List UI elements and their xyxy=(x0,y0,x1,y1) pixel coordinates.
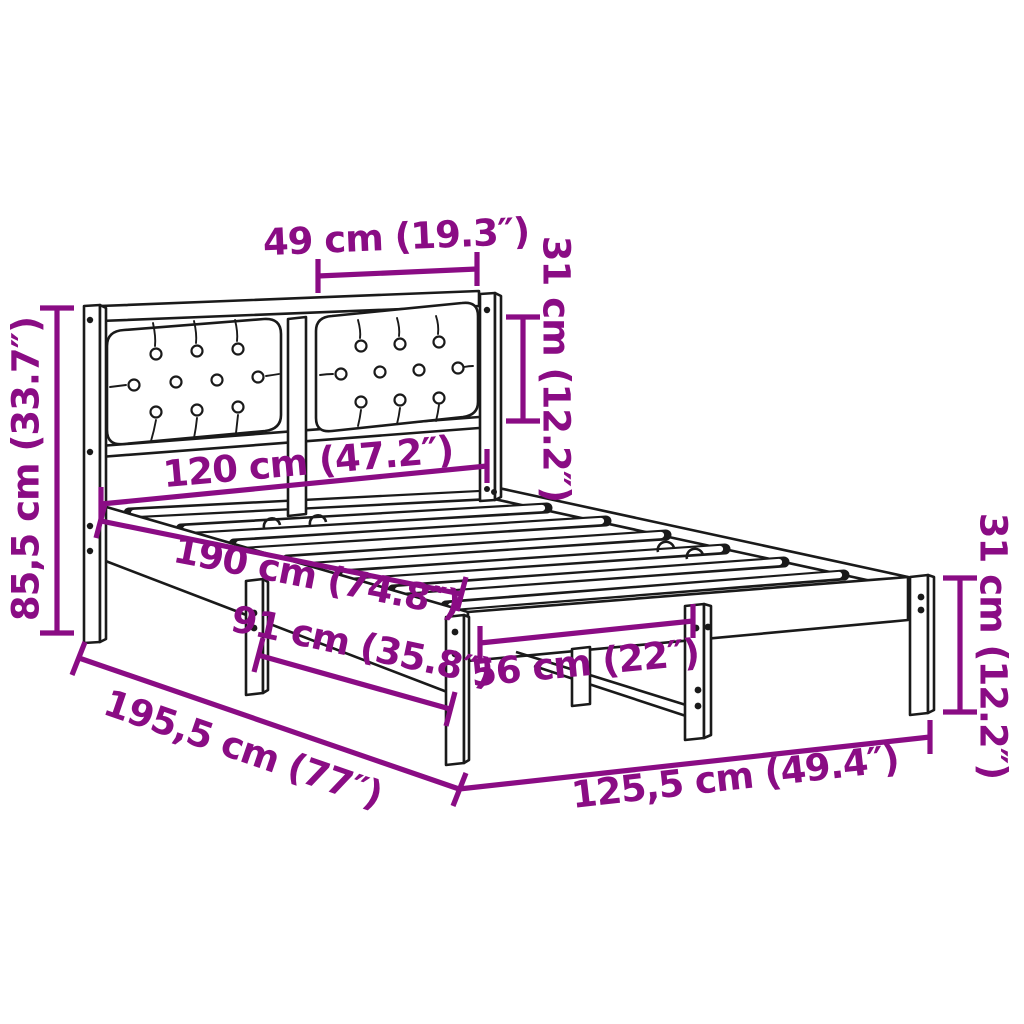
dimension-headboard-cushion-width: 49 cm (19.3″) xyxy=(262,210,530,293)
headboard-right-cushion xyxy=(316,303,478,431)
front-foot-leg xyxy=(446,615,469,765)
dimension-leg-height: 31 cm (12.2″) xyxy=(943,513,1015,779)
headboard-cushion-width-label: 49 cm (19.3″) xyxy=(262,210,530,265)
product-dimension-diagram: 49 cm (19.3″) 31 cm (12.2″) 85,5 cm (33.… xyxy=(0,0,1024,1024)
dimension-headboard-cushion-height: 31 cm (12.2″) xyxy=(506,236,578,502)
bed-frame-drawing xyxy=(84,291,934,765)
rear-foot-leg xyxy=(910,575,934,715)
headboard-left-post xyxy=(84,305,106,643)
overall-width-label: 125,5 cm (49.4″) xyxy=(569,737,901,817)
headboard-right-post xyxy=(480,293,501,501)
headboard-left-cushion xyxy=(107,319,281,444)
leg-height-label: 31 cm (12.2″) xyxy=(972,513,1015,779)
headboard-cushion-height-label: 31 cm (12.2″) xyxy=(535,236,578,502)
bed-dimension-illustration: 49 cm (19.3″) 31 cm (12.2″) 85,5 cm (33.… xyxy=(0,0,1024,1024)
dimension-headboard-height: 85,5 cm (33.7″) xyxy=(5,308,75,633)
headboard-height-label: 85,5 cm (33.7″) xyxy=(5,317,48,621)
